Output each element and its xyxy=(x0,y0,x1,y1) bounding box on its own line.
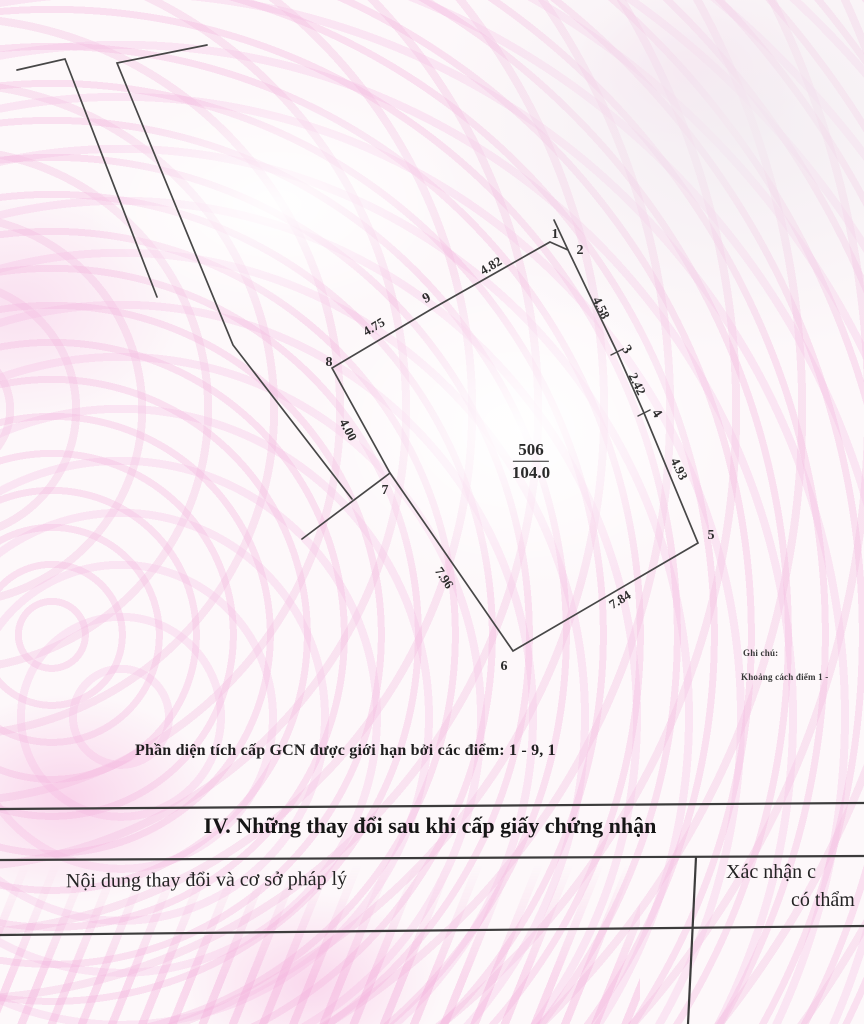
parcel-area: 104.0 xyxy=(512,462,550,483)
vertex-3: 3 xyxy=(617,343,634,358)
column-header-right-line2: có thẩm xyxy=(791,889,855,912)
note-ghi-chu: Ghi chú: xyxy=(743,648,778,658)
edge-length-3-4: 2.42 xyxy=(625,370,649,397)
vertex-4: 4 xyxy=(647,407,664,422)
edge-length-4-5: 4.93 xyxy=(667,455,691,482)
edge-length-8-9: 4.75 xyxy=(360,314,388,339)
vertex-7: 7 xyxy=(382,483,389,499)
vertex-1: 1 xyxy=(552,227,559,243)
vertex-6: 6 xyxy=(501,659,508,675)
column-header-right-line1: Xác nhận c xyxy=(726,861,816,884)
section-iv-title: IV. Những thay đổi sau khi cấp giấy chứn… xyxy=(60,813,800,839)
edge-length-2-3: 4.58 xyxy=(589,294,613,321)
vertex-9: 9 xyxy=(420,290,434,307)
edge-length-8-7: 4.00 xyxy=(336,416,361,444)
column-header-left: Nội dung thay đổi và cơ sở pháp lý xyxy=(66,868,347,893)
edge-length-9-1: 4.82 xyxy=(477,253,505,278)
vertex-5: 5 xyxy=(708,528,715,544)
edge-length-6-5: 7.84 xyxy=(606,587,634,613)
certificate-page: 1234567894.754.824.582.424.934.007.967.8… xyxy=(0,0,864,1024)
edge-length-7-6: 7.96 xyxy=(431,564,457,592)
note-khoang-cach: Khoảng cách điểm 1 - xyxy=(741,672,829,682)
parcel-label: 506 104.0 xyxy=(512,439,550,484)
vertex-2: 2 xyxy=(577,243,584,259)
parcel-number: 506 xyxy=(513,439,549,462)
vertex-8: 8 xyxy=(326,355,333,371)
diagram-caption: Phần diện tích cấp GCN được giới hạn bởi… xyxy=(135,742,556,760)
